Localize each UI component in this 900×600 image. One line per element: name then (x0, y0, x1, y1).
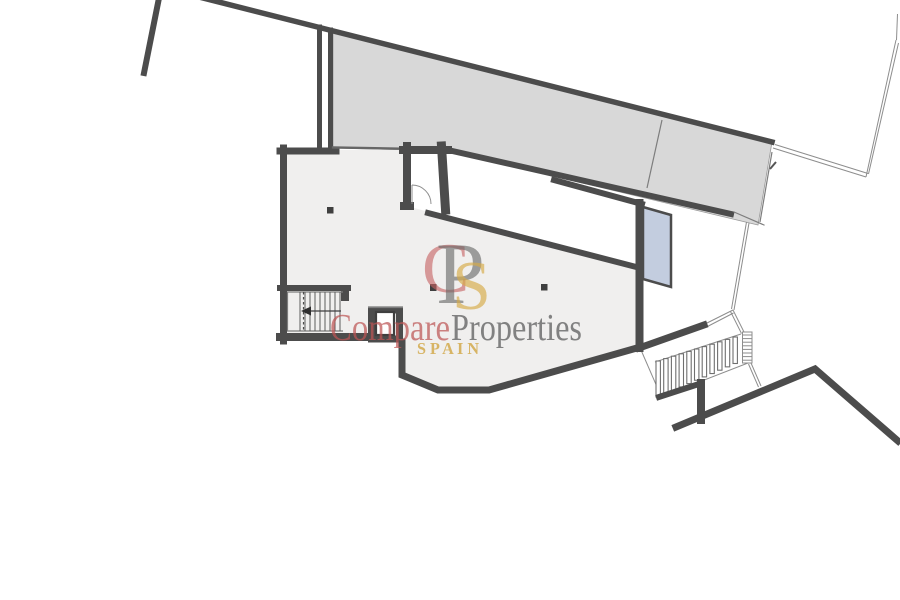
property-boundary-lines (773, 14, 899, 177)
wall-stairwell-stub (341, 286, 349, 301)
glazed-panel (643, 207, 671, 287)
door-arc (412, 185, 431, 204)
column (541, 284, 548, 291)
floor-plan-canvas: C P S Compare Properties S P A I N (0, 0, 900, 600)
door-swing (412, 185, 431, 204)
floor-plan-drawing: C P S Compare Properties S P A I N (0, 0, 900, 600)
wall-northeast-stub (639, 325, 704, 348)
wall-isolated-topleft (144, 0, 159, 73)
fence-hatch-strip (743, 332, 753, 363)
column (327, 207, 334, 214)
wall-closet-right (442, 146, 446, 210)
fence-hatch-marks (743, 335, 753, 360)
watermark-country: S P A I N (417, 339, 480, 358)
exterior-steps (656, 337, 737, 397)
wall-bottom-right (676, 369, 898, 441)
terrace-edge-tick (770, 162, 776, 169)
